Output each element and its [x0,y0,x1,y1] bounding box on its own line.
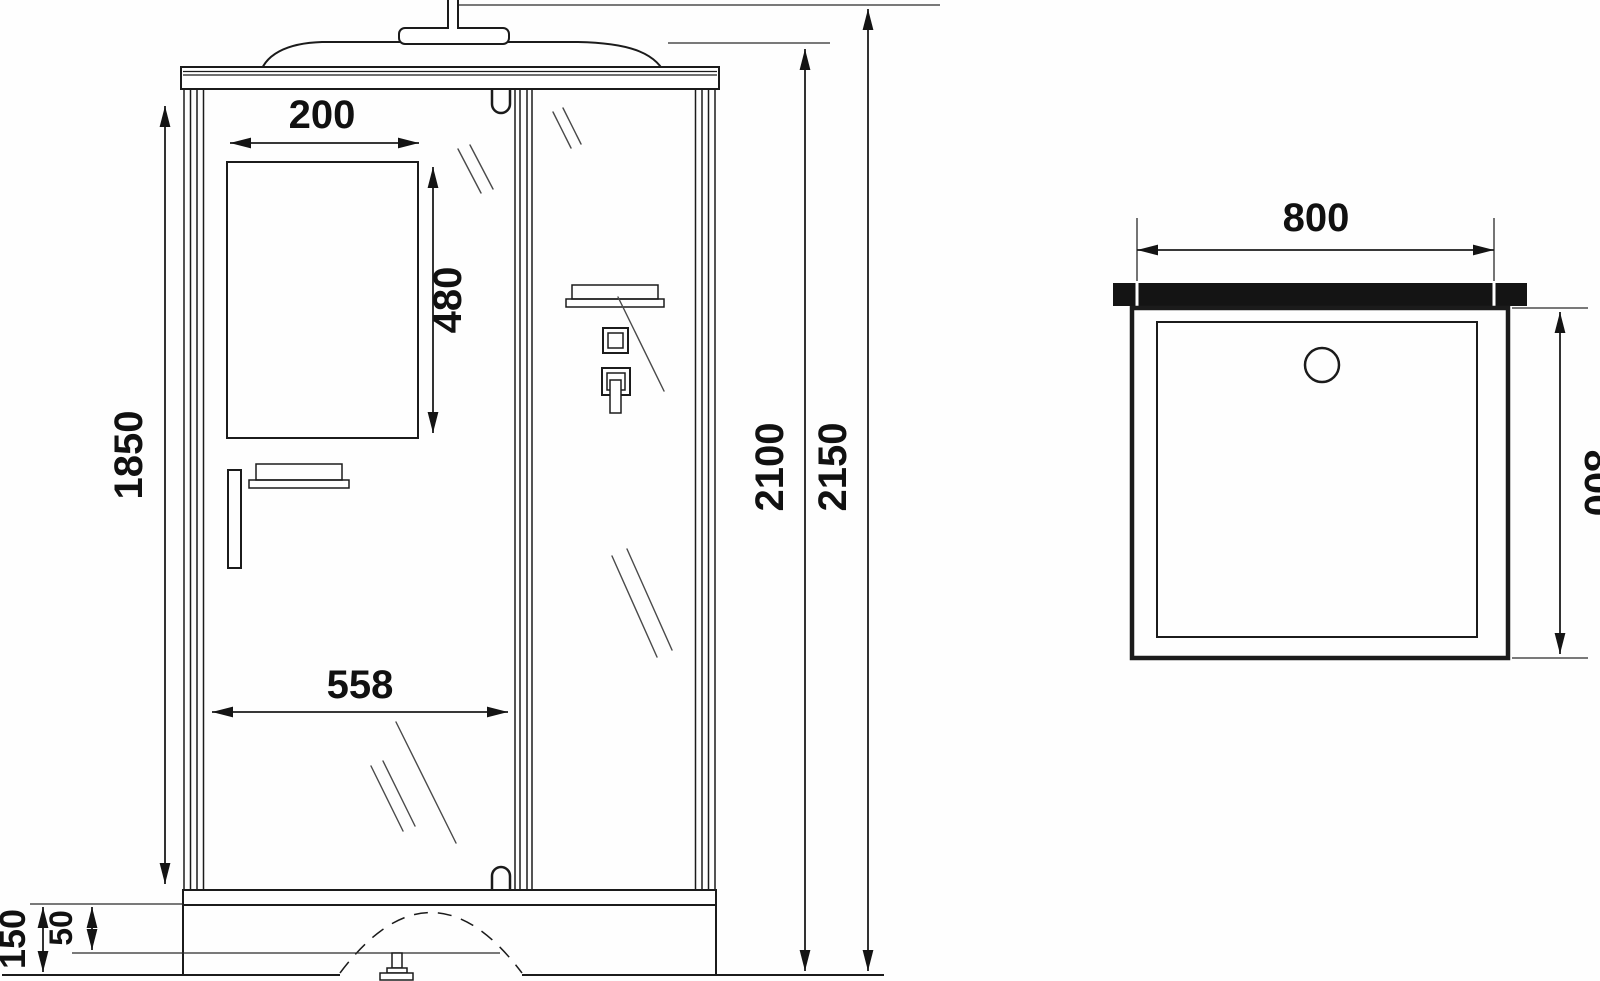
center-mullion-profile [515,89,532,890]
dim-tray-width: 800 [1137,196,1494,281]
dim-door-width: 558 [212,663,508,712]
door-handle [228,470,241,568]
glass-shine-marks [371,108,672,843]
dim-total-height: 2150 [811,9,868,971]
dim-label-2150: 2150 [811,423,855,512]
top-view: 800 800 [1113,196,1600,658]
dim-window-width: 200 [230,93,419,143]
dim-label-800-width: 800 [1283,196,1350,240]
technical-drawing-page: 200 480 558 1850 2100 2150 150 5 [0,0,1600,981]
reference-lines [30,5,940,904]
dim-base-inset: 50 [43,907,92,950]
dim-label-150: 150 [0,909,33,969]
tray-inner [1157,322,1477,637]
dim-window-height: 480 [426,167,470,433]
door-top-roller-hook [492,90,510,113]
dim-label-2100: 2100 [748,423,792,512]
tray-rim [183,890,716,905]
cornice [181,67,719,89]
front-view: 200 480 558 1850 2100 2150 150 5 [0,0,940,980]
door-bottom-roller-hook [492,867,510,890]
dim-label-558: 558 [327,663,394,707]
shower-pipe [448,0,458,29]
dim-glass-height: 1850 [107,106,165,884]
diverter-control [603,328,628,353]
dim-label-800-depth: 800 [1576,450,1600,517]
dim-label-50: 50 [43,910,79,946]
shower-cabin-drawing: 200 480 558 1850 2100 2150 150 5 [0,0,1600,981]
back-wall-bar [1113,283,1527,306]
drain-fitting [380,953,413,980]
dim-cabin-height: 2100 [748,49,805,971]
dim-label-1850: 1850 [107,411,151,500]
door-window [227,162,418,438]
right-frame-profile [696,89,716,890]
door-shelf [249,464,349,488]
dim-tray-depth: 800 [1512,308,1600,658]
base-skirt [72,905,716,980]
left-frame-profile [184,89,204,890]
drain-hole [1305,348,1339,382]
base-arch-cutout [340,913,522,974]
dim-label-200: 200 [289,93,356,137]
fixed-panel-shelf [566,285,664,307]
dim-base-height: 150 [0,907,43,972]
tray-outer [1132,308,1508,658]
shower-pipe-base [399,28,509,44]
dim-label-480: 480 [426,267,470,334]
faucet-lever [602,368,630,413]
